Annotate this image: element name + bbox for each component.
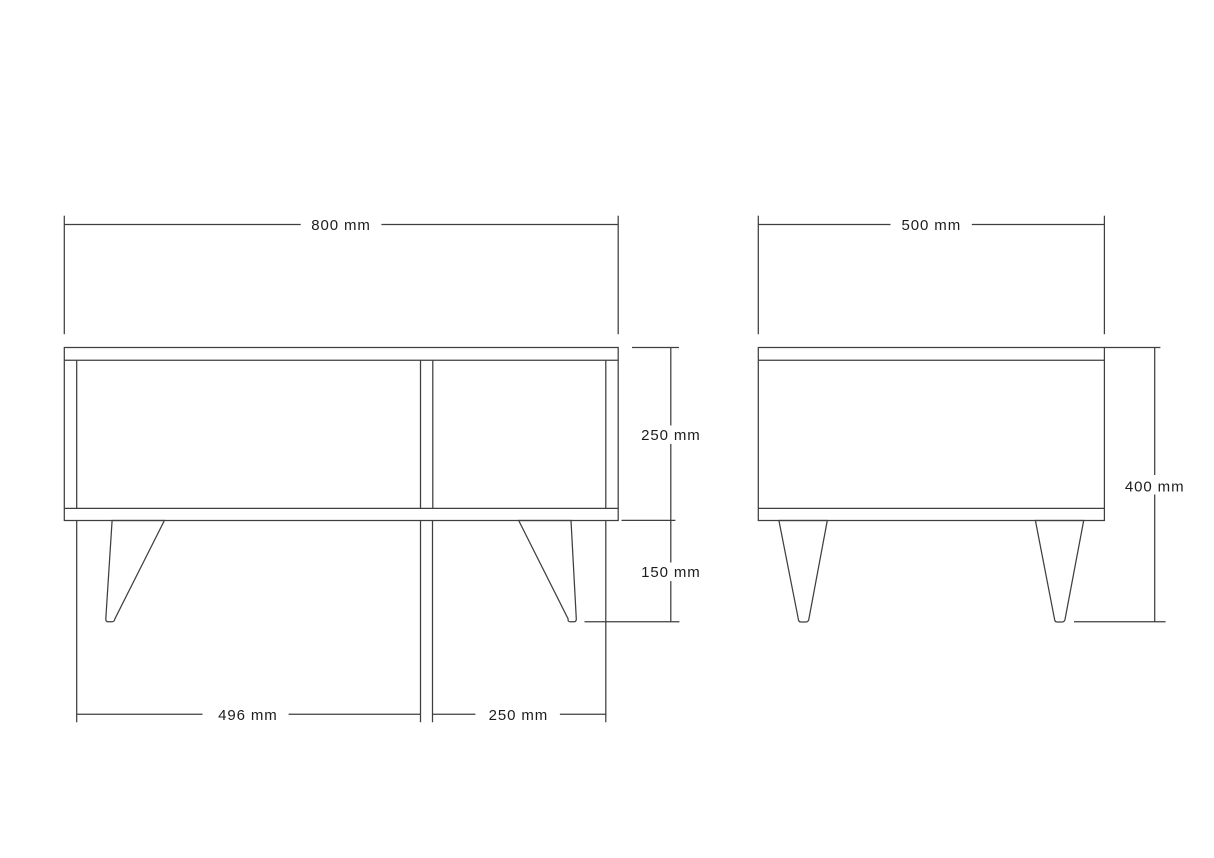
svg-text:496 mm: 496 mm bbox=[218, 707, 278, 724]
svg-text:800 mm: 800 mm bbox=[311, 217, 371, 234]
svg-text:500 mm: 500 mm bbox=[902, 217, 962, 234]
svg-text:250 mm: 250 mm bbox=[641, 427, 701, 444]
svg-text:250 mm: 250 mm bbox=[489, 707, 549, 724]
svg-text:400 mm: 400 mm bbox=[1125, 479, 1185, 496]
svg-text:150 mm: 150 mm bbox=[641, 564, 701, 581]
